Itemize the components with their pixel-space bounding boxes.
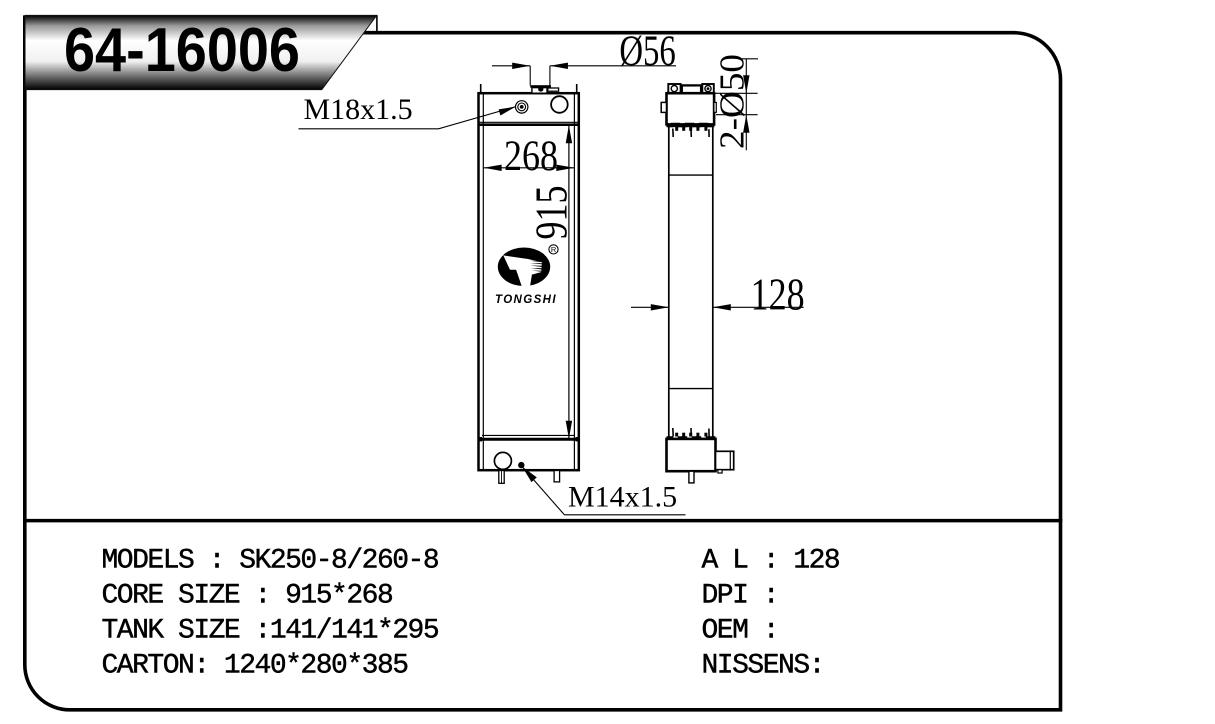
svg-text:915: 915: [527, 186, 577, 240]
svg-text:M18x1.5: M18x1.5: [304, 93, 413, 126]
svg-text:TANK SIZE :141/141*295: TANK SIZE :141/141*295: [102, 616, 439, 647]
svg-text:MODELS : SK250-8/260-8: MODELS : SK250-8/260-8: [102, 545, 439, 576]
svg-text:Ø56: Ø56: [619, 28, 676, 75]
svg-text:NISSENS:: NISSENS:: [702, 650, 824, 681]
svg-text:TONGSHI: TONGSHI: [495, 294, 557, 306]
svg-text:M14x1.5: M14x1.5: [568, 480, 677, 513]
svg-text:2-Ø50: 2-Ø50: [713, 54, 752, 149]
svg-text:CARTON: 1240*280*385: CARTON: 1240*280*385: [102, 650, 409, 681]
svg-text:A L : 128: A L : 128: [702, 545, 840, 576]
svg-text:64-16006: 64-16006: [64, 16, 300, 85]
svg-text:OEM :: OEM :: [702, 616, 779, 647]
svg-text:128: 128: [751, 270, 805, 320]
svg-text:R: R: [551, 245, 556, 254]
svg-text:CORE SIZE : 915*268: CORE SIZE : 915*268: [102, 580, 393, 611]
svg-text:268: 268: [504, 133, 558, 180]
svg-text:DPI :: DPI :: [702, 580, 779, 611]
